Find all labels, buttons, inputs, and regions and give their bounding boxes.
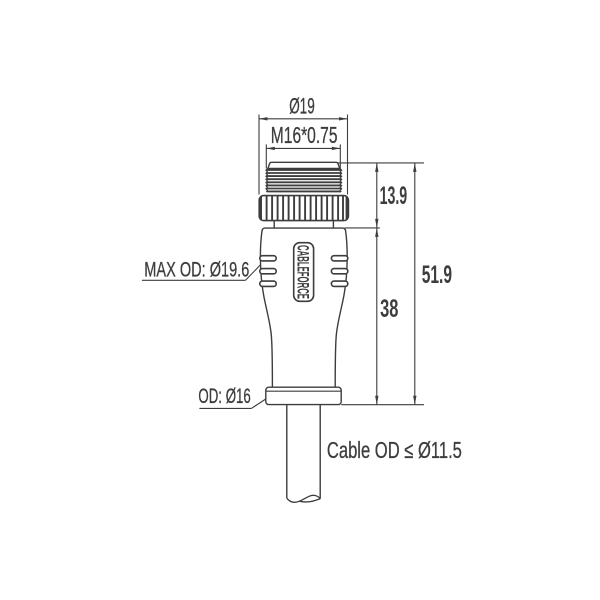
- svg-text:M16*0.75: M16*0.75: [271, 122, 338, 148]
- svg-text:51.9: 51.9: [422, 262, 452, 289]
- svg-text:38: 38: [380, 296, 398, 323]
- svg-text:13.9: 13.9: [380, 183, 408, 210]
- svg-text:Cable OD ≤ Ø11.5: Cable OD ≤ Ø11.5: [327, 437, 462, 463]
- svg-text:OD: Ø16: OD: Ø16: [198, 385, 250, 408]
- svg-text:MAX OD: Ø19.6: MAX OD: Ø19.6: [144, 257, 249, 281]
- svg-text:Ø19: Ø19: [289, 93, 315, 118]
- svg-text:CABLEFORCE: CABLEFORCE: [294, 245, 313, 299]
